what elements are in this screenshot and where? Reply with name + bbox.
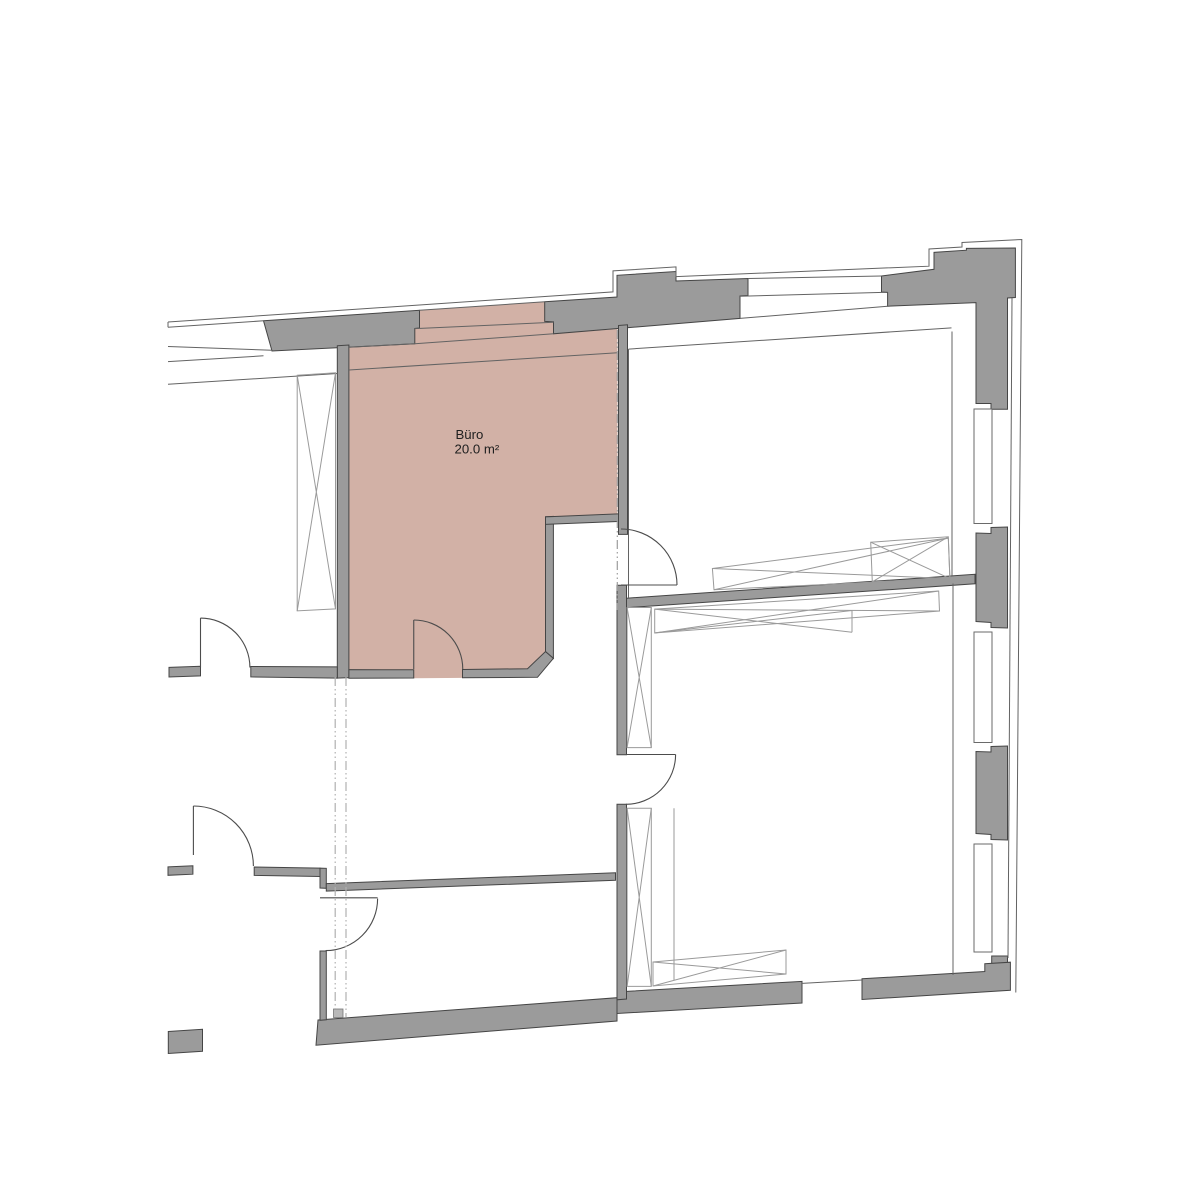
svg-text:Büro: Büro xyxy=(456,427,484,442)
svg-text:20.0 m²: 20.0 m² xyxy=(455,442,500,457)
